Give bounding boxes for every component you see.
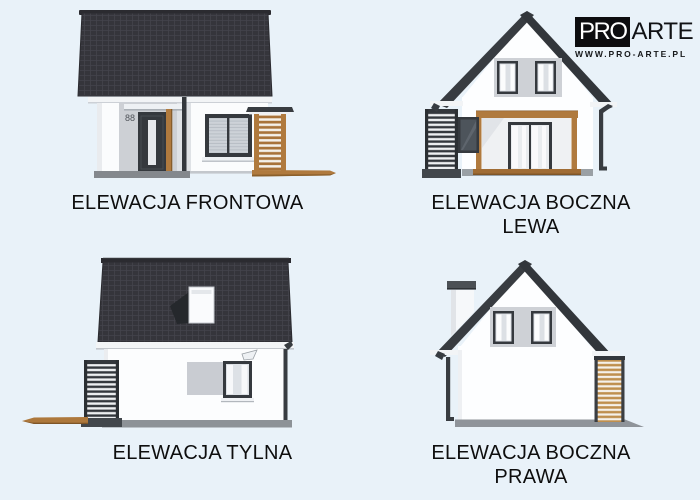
skylight: [189, 287, 214, 323]
wall-panel: [187, 362, 223, 395]
logo-wordmark: PRO ARTE: [575, 17, 693, 47]
trellis: [81, 360, 122, 427]
label-elewacja-boczna-lewa: ELEWACJA BOCZNA LEWA: [366, 191, 696, 239]
eaves-soffit: [96, 342, 294, 350]
attic-window-left: [497, 61, 518, 94]
attic-window-left: [493, 311, 514, 344]
ground-beam: [252, 170, 336, 177]
label-text-line2: LEWA: [366, 215, 696, 239]
front-door: [138, 112, 166, 172]
trellis: [422, 109, 461, 178]
attic-window-right: [531, 311, 552, 344]
label-elewacja-frontowa: ELEWACJA FRONTOWA: [15, 191, 360, 215]
eaves-soffit-right: [592, 351, 620, 356]
roof: [78, 10, 272, 96]
downspout: [182, 97, 187, 172]
side-window: [458, 117, 479, 153]
attic-window-right: [535, 61, 556, 94]
porch-post-right: [572, 118, 578, 172]
porch-deck: [473, 169, 581, 175]
window: [221, 361, 254, 402]
wall: [104, 349, 284, 422]
patio-door: [508, 122, 552, 172]
house-number: 88: [125, 113, 135, 123]
label-text-line1: ELEWACJA BOCZNA: [366, 191, 696, 215]
downspout-right: [599, 104, 613, 171]
eaves-soffit: [88, 97, 272, 103]
label-text: ELEWACJA TYLNA: [30, 441, 375, 465]
label-elewacja-boczna-prawa: ELEWACJA BOCZNA PRAWA: [366, 441, 696, 489]
eaves-soffit-right: [590, 102, 617, 107]
elevation-sheet: 88: [0, 0, 700, 500]
window: [202, 114, 255, 162]
label-elewacja-tylna: ELEWACJA TYLNA: [30, 441, 375, 465]
porch-beam: [476, 111, 578, 118]
roof: [98, 257, 292, 342]
door-canopy: [124, 104, 184, 111]
logo-pro-box: PRO: [575, 17, 630, 47]
porch: [476, 110, 578, 172]
logo-arte-text: ARTE: [630, 17, 694, 47]
porch-post: [166, 109, 172, 172]
ground-beam: [22, 417, 88, 424]
downspout: [284, 341, 294, 422]
label-text-line2: PRAWA: [366, 465, 696, 489]
plinth: [94, 171, 268, 178]
downspout: [435, 351, 454, 421]
trellis: [594, 356, 625, 422]
pro-arte-logo: PRO ARTE WWW.PRO-ARTE.PL: [575, 17, 693, 59]
label-text-line1: ELEWACJA BOCZNA: [366, 441, 696, 465]
logo-website-url: WWW.PRO-ARTE.PL: [575, 49, 693, 59]
plinth: [102, 420, 292, 428]
label-text: ELEWACJA FRONTOWA: [15, 191, 360, 215]
